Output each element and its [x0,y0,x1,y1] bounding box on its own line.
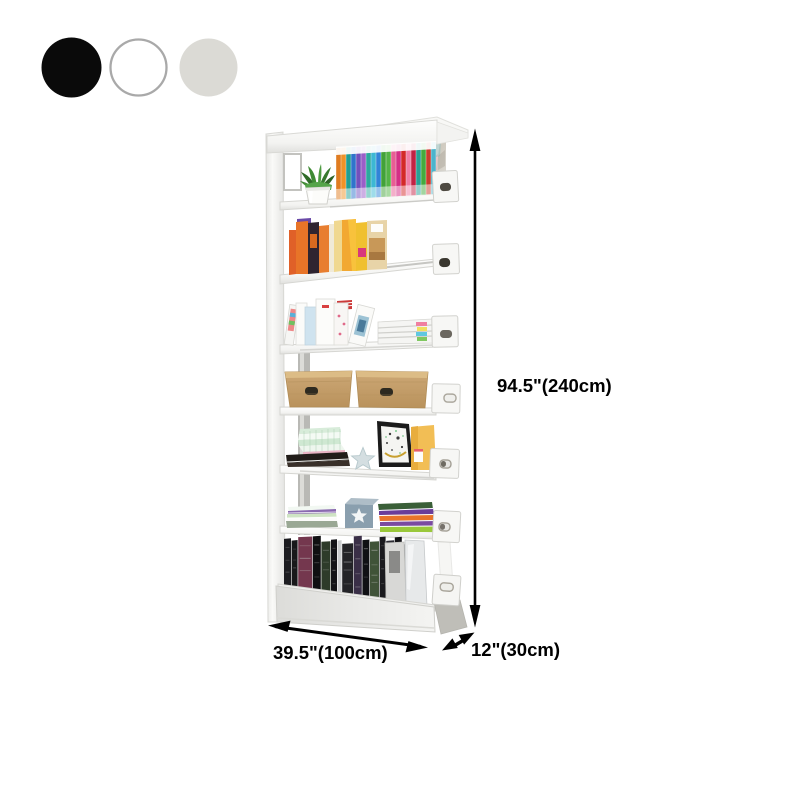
svg-text:39.5"(100cm): 39.5"(100cm) [273,642,388,663]
svg-text:12"(30cm): 12"(30cm) [471,639,560,660]
svg-text:94.5"(240cm): 94.5"(240cm) [497,375,612,396]
